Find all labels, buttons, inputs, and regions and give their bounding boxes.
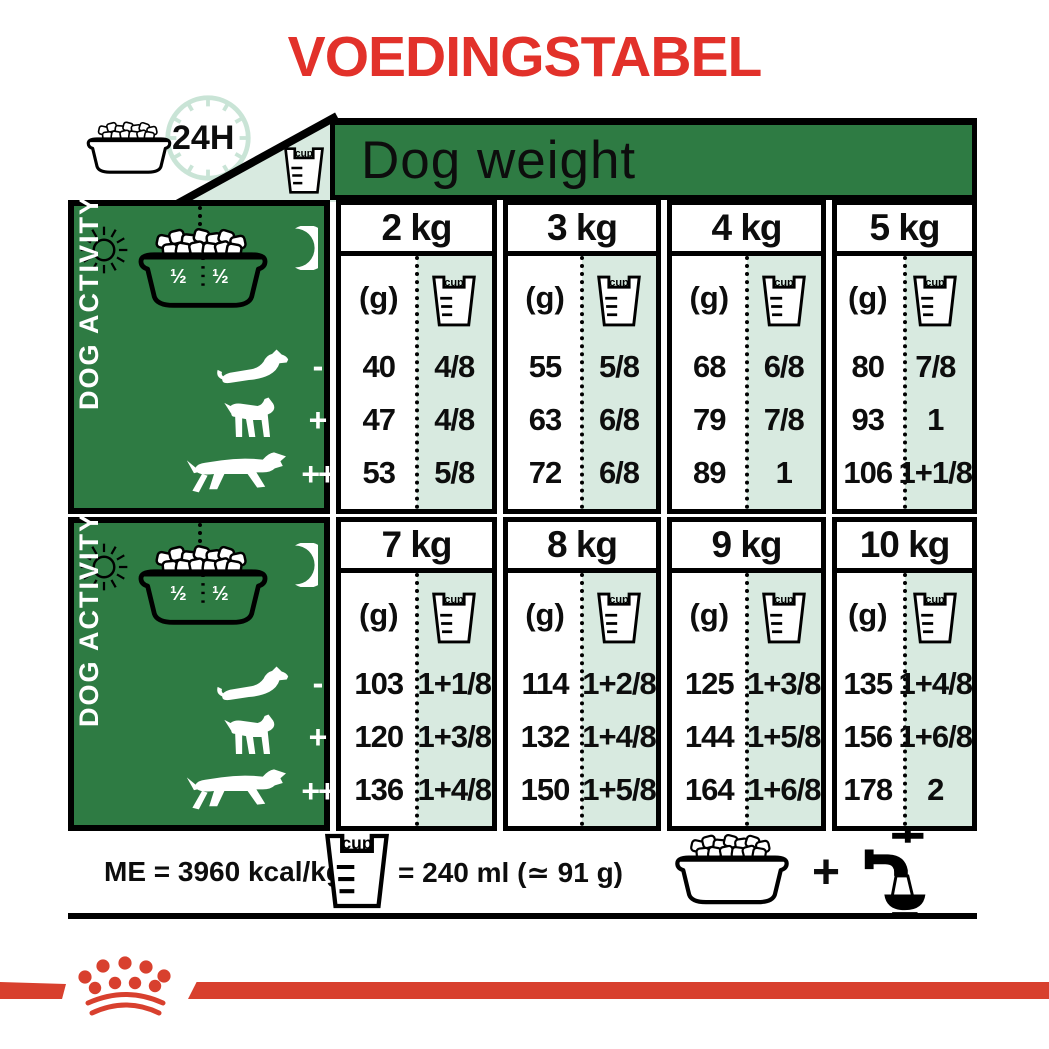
grams-value: 89: [693, 446, 725, 499]
ration-box: (g) 68 79 89 cup 6/8 7/8 1: [667, 251, 826, 514]
weight-columns: 2 kg (g) 40 47 53 cup 4/8 4/8: [336, 200, 977, 514]
section-weights-2-5kg: ½ ½ DOG ACTIVITY - + ++ 2 kg (g) 40: [68, 200, 977, 514]
weight-header: 9 kg: [667, 517, 826, 573]
grams-value: 144: [685, 710, 734, 763]
grams-value: 63: [529, 393, 561, 446]
grams-value: 40: [363, 340, 395, 393]
weight-header: 4 kg: [667, 200, 826, 256]
cup-value: 5/8: [434, 446, 474, 499]
cup-value: 1+6/8: [899, 710, 972, 763]
cup-subcolumn: cup 7/8 1 1+1/8: [899, 256, 972, 509]
page-title: VOEDINGSTABEL: [0, 24, 1049, 90]
cup-value: 1+3/8: [418, 710, 491, 763]
activity-level-high: ++: [298, 456, 338, 493]
cup-value: 6/8: [599, 393, 639, 446]
half-bowl-icon: [128, 228, 278, 312]
grams-subcolumn: (g) 114 132 150: [508, 573, 582, 826]
moon-icon: [284, 226, 318, 270]
grams-value: 164: [685, 763, 734, 816]
feeding-table-page: VOEDINGSTABEL 24H cup Dog weight ½ ½ DOG…: [0, 0, 1049, 1049]
weight-columns: 7 kg (g) 103 120 136 cup 1+1/8 1+3/8: [336, 517, 977, 831]
cup-value: 1+1/8: [899, 446, 972, 499]
grams-value: 53: [363, 446, 395, 499]
weight-header: 8 kg: [503, 517, 661, 573]
grams-value: 80: [852, 340, 884, 393]
grams-header: (g): [689, 573, 729, 657]
kibble-bowl-icon: [82, 121, 176, 177]
svg-text:cup: cup: [295, 149, 313, 160]
measuring-cup-icon: cup: [912, 274, 958, 328]
cup-subcolumn: cup 6/8 7/8 1: [747, 256, 822, 509]
dog-activity-panel: ½ ½ DOG ACTIVITY - + ++: [68, 517, 330, 831]
ration-box: (g) 40 47 53 cup 4/8 4/8 5/8: [336, 251, 497, 514]
dog-weight-header: Dog weight: [330, 118, 977, 200]
metabolizable-energy-label: ME = 3960 kcal/kg: [104, 830, 343, 914]
measuring-cup-icon: cup: [283, 146, 325, 195]
dog-standing-icon: [222, 711, 284, 759]
ration-box: (g) 55 63 72 cup 5/8 6/8 6/8: [503, 251, 661, 514]
grams-value: 132: [521, 710, 570, 763]
dog-standing-icon: [222, 394, 284, 442]
grams-value: 79: [693, 393, 725, 446]
cup-value: 1+5/8: [747, 710, 820, 763]
svg-text:cup: cup: [609, 594, 629, 606]
weight-column-7kg: 7 kg (g) 103 120 136 cup 1+1/8 1+3/8: [336, 517, 497, 831]
half-ration-day: ½: [170, 266, 187, 289]
ration-box: (g) 125 144 164 cup 1+3/8 1+5/8 1+6/8: [667, 568, 826, 831]
weight-header: 10 kg: [832, 517, 977, 573]
weight-column-10kg: 10 kg (g) 135 156 178 cup 1+4/8 1+6/8: [832, 517, 977, 831]
ration-box: (g) 135 156 178 cup 1+4/8 1+6/8 2: [832, 568, 977, 831]
weight-header: 7 kg: [336, 517, 497, 573]
ration-box: (g) 80 93 106 cup 7/8 1 1+1/8: [832, 251, 977, 514]
cup-value: 2: [927, 763, 943, 816]
grams-value: 106: [843, 446, 892, 499]
cup-subcolumn: cup 1+1/8 1+3/8 1+4/8: [417, 573, 493, 826]
half-ration-night: ½: [212, 266, 229, 289]
weight-column-3kg: 3 kg (g) 55 63 72 cup 5/8 6/8: [503, 200, 661, 514]
cup-subcolumn: cup 4/8 4/8 5/8: [417, 256, 493, 509]
activity-level-low: -: [298, 348, 338, 385]
activity-level-medium: +: [298, 402, 338, 439]
svg-text:cup: cup: [341, 833, 372, 853]
svg-text:cup: cup: [774, 277, 794, 289]
weight-column-9kg: 9 kg (g) 125 144 164 cup 1+3/8 1+5/8: [667, 517, 826, 831]
grams-header: (g): [848, 256, 888, 340]
grams-value: 135: [843, 657, 892, 710]
grams-value: 103: [354, 657, 403, 710]
moon-icon: [284, 543, 318, 587]
measuring-cup-icon: cup: [761, 274, 807, 328]
cup-subcolumn: cup 1+2/8 1+4/8 1+5/8: [582, 573, 656, 826]
cup-value: 5/8: [599, 340, 639, 393]
grams-value: 150: [521, 763, 570, 816]
cup-value: 1+2/8: [582, 657, 655, 710]
grams-value: 68: [693, 340, 725, 393]
dog-activity-panel: ½ ½ DOG ACTIVITY - + ++: [68, 200, 330, 514]
grams-value: 114: [521, 657, 568, 710]
footer-divider-line: [68, 913, 977, 919]
grams-value: 178: [843, 763, 892, 816]
dog-running-icon: [186, 767, 294, 815]
section-weights-7-10kg: ½ ½ DOG ACTIVITY - + ++ 7 kg (g) 103: [68, 517, 977, 831]
kibble-bowl-icon: [656, 834, 808, 908]
brand-stripe-right: [188, 982, 1049, 999]
weight-column-8kg: 8 kg (g) 114 132 150 cup 1+2/8 1+4/8: [503, 517, 661, 831]
cup-value: 1+4/8: [899, 657, 972, 710]
weight-column-4kg: 4 kg (g) 68 79 89 cup 6/8 7/8: [667, 200, 826, 514]
ration-box: (g) 103 120 136 cup 1+1/8 1+3/8 1+4/8: [336, 568, 497, 831]
activity-level-high: ++: [298, 773, 338, 810]
grams-subcolumn: (g) 68 79 89: [672, 256, 747, 509]
svg-text:cup: cup: [925, 277, 945, 289]
cup-value: 1+5/8: [582, 763, 655, 816]
svg-text:cup: cup: [925, 594, 945, 606]
cup-value: 1+6/8: [747, 763, 820, 816]
cup-subcolumn: cup 1+3/8 1+5/8 1+6/8: [747, 573, 822, 826]
grams-value: 156: [843, 710, 892, 763]
grams-header: (g): [525, 256, 565, 340]
grams-subcolumn: (g) 40 47 53: [341, 256, 417, 509]
measuring-cup-icon: cup: [431, 591, 477, 645]
grams-value: 72: [529, 446, 561, 499]
cup-subcolumn: cup 1+4/8 1+6/8 2: [899, 573, 972, 826]
dog-weight-label: Dog weight: [335, 130, 636, 191]
svg-text:cup: cup: [774, 594, 794, 606]
cup-value: 1+4/8: [418, 763, 491, 816]
grams-subcolumn: (g) 55 63 72: [508, 256, 582, 509]
water-tap-icon: [856, 830, 942, 916]
measuring-cup-icon: cup: [596, 274, 642, 328]
grams-subcolumn: (g) 125 144 164: [672, 573, 747, 826]
footer-info: ME = 3960 kcal/kg cup = 240 ml (≃ 91 g) …: [68, 830, 977, 914]
grams-subcolumn: (g) 80 93 106: [837, 256, 899, 509]
measuring-cup-icon: cup: [912, 591, 958, 645]
cup-value: 1+4/8: [582, 710, 655, 763]
weight-header: 2 kg: [336, 200, 497, 256]
grams-header: (g): [848, 573, 888, 657]
cup-value: 1+3/8: [747, 657, 820, 710]
grams-header: (g): [689, 256, 729, 340]
grams-value: 93: [852, 393, 884, 446]
dog-activity-label: DOG ACTIVITY: [74, 523, 105, 727]
svg-text:cup: cup: [444, 277, 464, 289]
measuring-cup-icon: cup: [431, 274, 477, 328]
measuring-cup-icon: cup: [596, 591, 642, 645]
cup-value: 4/8: [434, 340, 474, 393]
grams-value: 125: [685, 657, 734, 710]
grams-value: 120: [354, 710, 403, 763]
weight-column-5kg: 5 kg (g) 80 93 106 cup 7/8 1 1: [832, 200, 977, 514]
svg-text:cup: cup: [609, 277, 629, 289]
grams-header: (g): [359, 573, 399, 657]
dog-lying-icon: [214, 663, 294, 707]
weight-header: 3 kg: [503, 200, 661, 256]
plus-sign: +: [812, 830, 840, 914]
grams-subcolumn: (g) 103 120 136: [341, 573, 417, 826]
grams-header: (g): [359, 256, 399, 340]
cup-equivalence-label: = 240 ml (≃ 91 g): [398, 830, 623, 914]
svg-text:cup: cup: [444, 594, 464, 606]
cup-value: 1+1/8: [418, 657, 491, 710]
weight-column-2kg: 2 kg (g) 40 47 53 cup 4/8 4/8: [336, 200, 497, 514]
cup-value: 4/8: [434, 393, 474, 446]
ration-box: (g) 114 132 150 cup 1+2/8 1+4/8 1+5/8: [503, 568, 661, 831]
cup-value: 7/8: [764, 393, 804, 446]
cup-value: 1: [927, 393, 943, 446]
dog-activity-label: DOG ACTIVITY: [74, 206, 105, 410]
dog-running-icon: [186, 450, 294, 498]
measuring-cup-icon: cup: [761, 591, 807, 645]
cup-value: 1: [776, 446, 792, 499]
royal-canin-crown-logo: [74, 955, 178, 1023]
half-ration-day: ½: [170, 583, 187, 606]
grams-subcolumn: (g) 135 156 178: [837, 573, 899, 826]
cup-value: 7/8: [915, 340, 955, 393]
grams-value: 136: [354, 763, 403, 816]
grams-header: (g): [525, 573, 565, 657]
activity-level-low: -: [298, 665, 338, 702]
half-ration-night: ½: [212, 583, 229, 606]
brand-stripe-left: [0, 982, 66, 999]
half-bowl-icon: [128, 545, 278, 629]
grams-value: 55: [529, 340, 561, 393]
cup-subcolumn: cup 5/8 6/8 6/8: [582, 256, 656, 509]
dog-lying-icon: [214, 346, 294, 390]
activity-level-medium: +: [298, 719, 338, 756]
weight-header: 5 kg: [832, 200, 977, 256]
cup-value: 6/8: [599, 446, 639, 499]
measuring-cup-icon: cup: [323, 832, 391, 910]
cup-value: 6/8: [764, 340, 804, 393]
grams-value: 47: [363, 393, 395, 446]
